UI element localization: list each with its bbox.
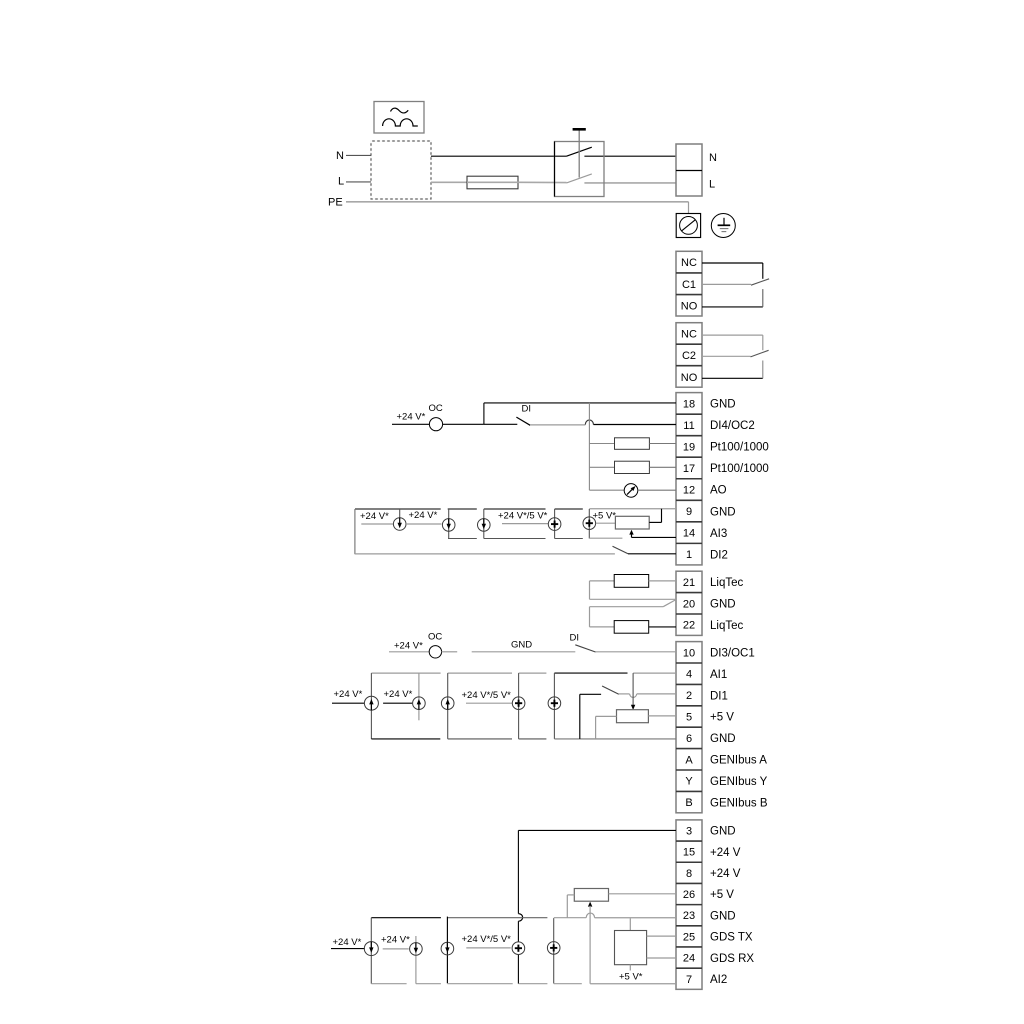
svg-text:+5 V: +5 V xyxy=(710,712,734,724)
svg-text:NC: NC xyxy=(681,329,697,341)
svg-text:GDS TX: GDS TX xyxy=(710,932,753,944)
svg-text:+24 V*: +24 V* xyxy=(394,641,423,652)
svg-text:L: L xyxy=(338,176,344,188)
svg-text:AI3: AI3 xyxy=(710,528,727,540)
svg-text:DI1: DI1 xyxy=(710,690,728,702)
svg-text:1: 1 xyxy=(686,549,692,561)
svg-text:8: 8 xyxy=(686,868,692,880)
svg-text:23: 23 xyxy=(683,910,695,922)
svg-text:L: L xyxy=(709,179,715,191)
svg-text:+24 V: +24 V xyxy=(710,847,741,859)
svg-text:Y: Y xyxy=(685,776,693,788)
svg-text:3: 3 xyxy=(686,825,692,837)
svg-text:14: 14 xyxy=(683,528,695,540)
svg-text:GND: GND xyxy=(710,733,736,745)
svg-text:DI2: DI2 xyxy=(710,549,728,561)
svg-text:Pt100/1000: Pt100/1000 xyxy=(710,463,769,475)
svg-text:2: 2 xyxy=(686,690,692,702)
svg-text:19: 19 xyxy=(683,441,695,453)
svg-text:LiqTec: LiqTec xyxy=(710,577,743,589)
svg-text:+5 V*: +5 V* xyxy=(619,972,643,983)
svg-text:AI2: AI2 xyxy=(710,974,727,986)
svg-text:B: B xyxy=(685,797,692,809)
svg-text:12: 12 xyxy=(683,485,695,497)
svg-text:+24 V*: +24 V* xyxy=(409,510,438,521)
svg-text:6: 6 xyxy=(686,733,692,745)
svg-text:11: 11 xyxy=(683,420,694,432)
svg-text:OC: OC xyxy=(428,631,442,642)
svg-text:+24 V*: +24 V* xyxy=(334,689,363,700)
svg-text:7: 7 xyxy=(686,974,692,986)
svg-text:GND: GND xyxy=(710,599,736,611)
svg-text:A: A xyxy=(685,754,693,766)
svg-text:17: 17 xyxy=(683,463,695,475)
svg-text:DI: DI xyxy=(522,404,532,415)
svg-text:NO: NO xyxy=(681,300,698,312)
svg-text:AI1: AI1 xyxy=(710,669,727,681)
svg-text:+24 V*/5 V*: +24 V*/5 V* xyxy=(498,510,548,521)
svg-text:NO: NO xyxy=(681,372,698,384)
svg-text:25: 25 xyxy=(683,931,695,943)
svg-text:GND: GND xyxy=(710,399,736,411)
svg-text:+24 V*: +24 V* xyxy=(381,934,410,945)
svg-text:GENIbus B: GENIbus B xyxy=(710,797,768,809)
svg-text:21: 21 xyxy=(683,577,695,589)
svg-text:18: 18 xyxy=(683,398,695,410)
svg-text:+24 V*: +24 V* xyxy=(384,689,413,700)
svg-text:10: 10 xyxy=(683,647,695,659)
svg-text:+5 V*: +5 V* xyxy=(593,510,617,521)
svg-text:26: 26 xyxy=(683,889,695,901)
svg-text:DI4/OC2: DI4/OC2 xyxy=(710,420,755,432)
svg-text:+24 V*: +24 V* xyxy=(397,411,426,422)
svg-text:+24 V*: +24 V* xyxy=(360,511,389,522)
svg-text:+24 V: +24 V xyxy=(710,868,741,880)
svg-text:20: 20 xyxy=(683,598,695,610)
svg-text:GND: GND xyxy=(710,506,736,518)
svg-text:GND: GND xyxy=(511,639,532,650)
svg-text:22: 22 xyxy=(683,620,695,632)
svg-text:GENIbus Y: GENIbus Y xyxy=(710,776,768,788)
svg-text:GDS RX: GDS RX xyxy=(710,953,754,965)
svg-text:C1: C1 xyxy=(682,279,696,291)
svg-text:NC: NC xyxy=(681,257,697,269)
svg-text:N: N xyxy=(709,152,717,164)
svg-text:OC: OC xyxy=(429,403,443,414)
svg-text:AO: AO xyxy=(710,485,727,497)
svg-text:C2: C2 xyxy=(682,350,696,362)
svg-text:15: 15 xyxy=(683,847,695,859)
svg-text:PE: PE xyxy=(328,197,343,209)
svg-text:DI3/OC1: DI3/OC1 xyxy=(710,648,755,660)
svg-text:+5 V: +5 V xyxy=(710,889,734,901)
svg-text:Pt100/1000: Pt100/1000 xyxy=(710,442,769,454)
svg-text:GND: GND xyxy=(710,826,736,838)
svg-text:N: N xyxy=(336,150,344,162)
svg-text:9: 9 xyxy=(686,506,692,518)
svg-text:GND: GND xyxy=(710,910,736,922)
svg-text:DI: DI xyxy=(570,632,580,643)
svg-text:+24 V*: +24 V* xyxy=(333,937,362,948)
svg-text:4: 4 xyxy=(686,669,692,681)
svg-text:LiqTec: LiqTec xyxy=(710,620,743,632)
svg-text:+24 V*/5 V*: +24 V*/5 V* xyxy=(462,934,512,945)
svg-text:+24 V*/5 V*: +24 V*/5 V* xyxy=(462,690,512,701)
svg-text:5: 5 xyxy=(686,712,692,724)
svg-text:GENIbus A: GENIbus A xyxy=(710,755,767,767)
svg-text:24: 24 xyxy=(683,953,695,965)
